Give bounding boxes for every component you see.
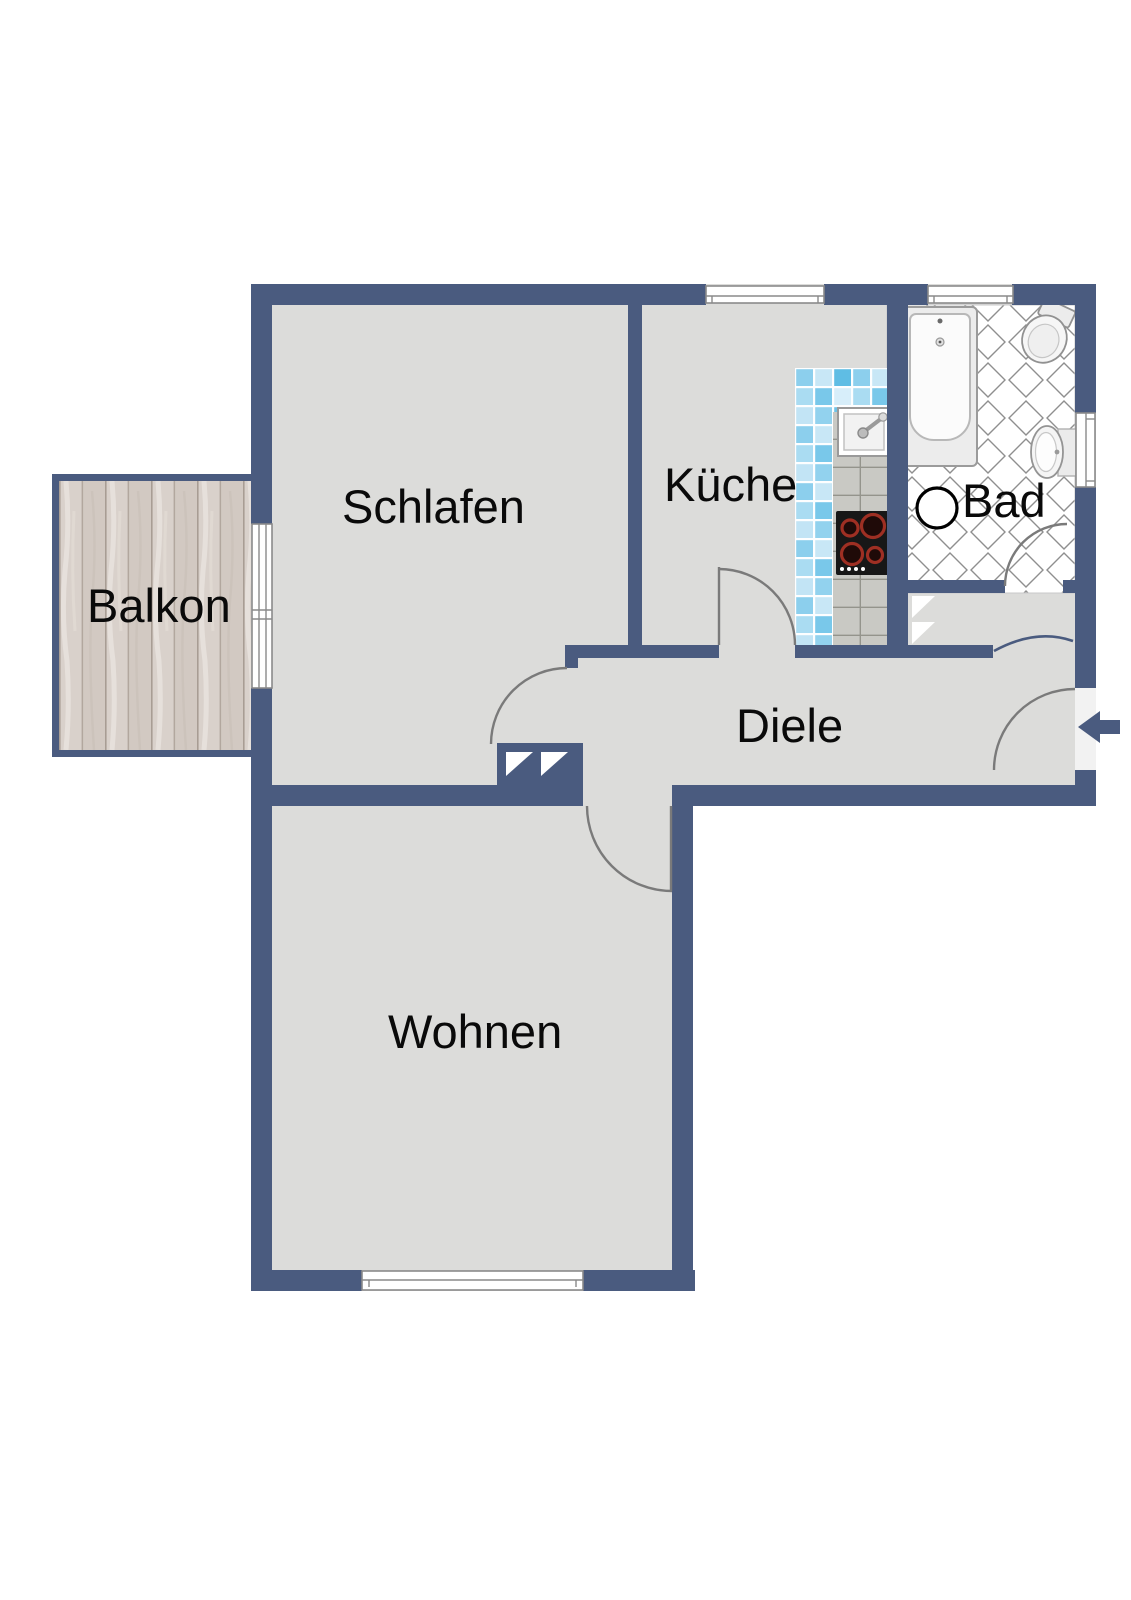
balcony-wall-left <box>52 474 59 757</box>
wall-nub-schlafen-door <box>565 645 578 668</box>
window-kueche-top <box>706 286 824 303</box>
wall-segment <box>1075 487 1096 688</box>
wall-counter-diele <box>795 645 993 658</box>
circle-fixture-icon <box>917 488 957 528</box>
window-bad-right <box>1076 413 1095 487</box>
kitchen-sink-icon <box>838 408 890 456</box>
wall-segment <box>251 284 272 524</box>
wall-segment <box>824 284 928 305</box>
wall-kueche-bad <box>887 284 908 658</box>
window-bad-top <box>928 286 1013 303</box>
label-kueche: Küche <box>664 458 797 511</box>
bathtub-icon <box>903 307 977 466</box>
label-diele: Diele <box>736 699 843 752</box>
label-wohnen: Wohnen <box>388 1005 562 1058</box>
wall-segment <box>251 1270 362 1291</box>
wall-diele-bottom <box>672 785 1096 806</box>
wall-wohnen-right <box>672 785 693 1291</box>
label-balkon: Balkon <box>87 579 231 632</box>
wall-bad-bottom-stub <box>1063 580 1075 593</box>
balcony-wall-bottom <box>52 750 251 757</box>
wall-kueche-diele <box>565 645 719 658</box>
window-wohnen-bottom <box>362 1271 583 1290</box>
label-bad: Bad <box>962 474 1046 527</box>
wall-bad-bottom <box>887 580 1005 593</box>
bathroom-sink-icon <box>1031 426 1076 478</box>
balcony-wall-top <box>52 474 251 481</box>
label-schlafen: Schlafen <box>342 480 525 533</box>
wall-schlafen-kueche <box>628 284 642 658</box>
kitchen-counter <box>795 368 890 645</box>
kitchen-mosaic-top <box>795 368 887 412</box>
wall-schlafen-wohnen <box>251 785 583 806</box>
wall-segment <box>1075 284 1096 413</box>
floor-plan-page: Schlafen Küche Bad Diele Wohnen Balkon <box>0 0 1131 1600</box>
wall-segment <box>251 688 272 1291</box>
cooktop-icon <box>836 511 890 575</box>
floor-plan: Schlafen Küche Bad Diele Wohnen Balkon <box>0 0 1131 1600</box>
window-balkon <box>252 524 272 688</box>
